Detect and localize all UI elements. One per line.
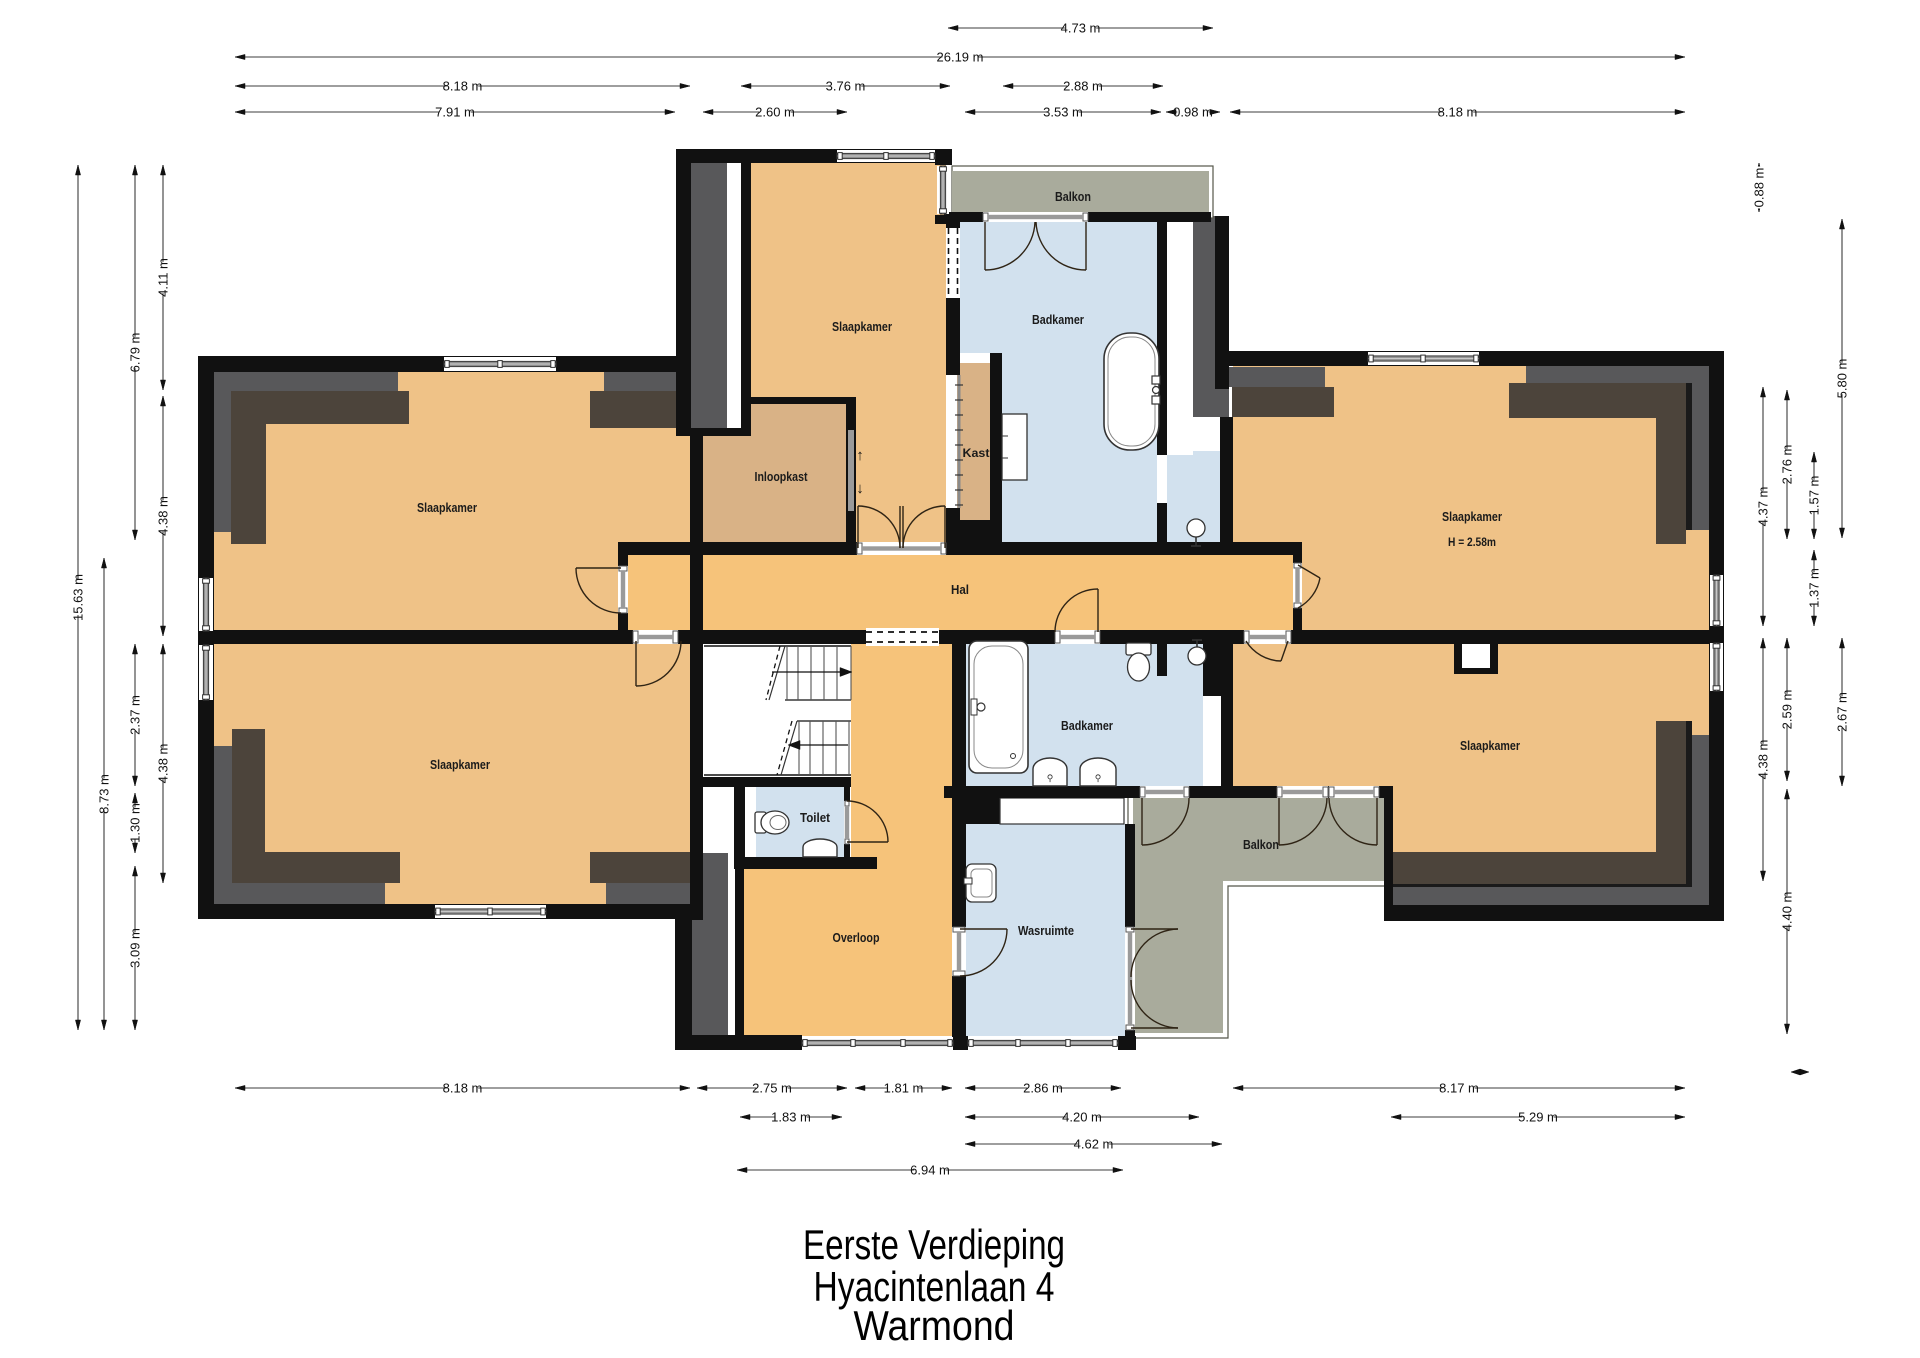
- svg-text:0.98 m: 0.98 m: [1173, 105, 1213, 120]
- svg-text:2.59 m: 2.59 m: [1780, 690, 1795, 730]
- svg-text:1.81 m: 1.81 m: [884, 1081, 924, 1096]
- svg-text:1.37 m: 1.37 m: [1807, 568, 1822, 608]
- svg-text:↓: ↓: [856, 480, 864, 497]
- svg-text:Warmond: Warmond: [854, 1302, 1015, 1349]
- svg-text:1.30 m: 1.30 m: [128, 803, 143, 843]
- svg-text:4.11 m: 4.11 m: [156, 258, 171, 297]
- svg-text:Slaapkamer: Slaapkamer: [1442, 509, 1502, 524]
- svg-text:15.63 m: 15.63 m: [71, 574, 86, 621]
- svg-text:1.83 m: 1.83 m: [771, 1110, 811, 1125]
- svg-text:2.86 m: 2.86 m: [1023, 1081, 1063, 1096]
- svg-text:Badkamer: Badkamer: [1061, 718, 1113, 733]
- svg-text:8.18 m: 8.18 m: [1438, 105, 1478, 120]
- svg-text:Balkon: Balkon: [1055, 189, 1091, 204]
- svg-text:4.37 m: 4.37 m: [1756, 487, 1771, 527]
- svg-text:Badkamer: Badkamer: [1032, 312, 1084, 327]
- svg-text:8.18 m: 8.18 m: [443, 79, 483, 94]
- svg-text:3.09 m: 3.09 m: [128, 928, 143, 968]
- svg-text:8.17 m: 8.17 m: [1439, 1081, 1479, 1096]
- svg-text:7.91 m: 7.91 m: [435, 105, 475, 120]
- svg-text:H = 2.58m: H = 2.58m: [1448, 537, 1496, 549]
- svg-text:Inloopkast: Inloopkast: [755, 469, 809, 484]
- svg-text:26.19 m: 26.19 m: [937, 50, 984, 65]
- svg-text:4.38 m: 4.38 m: [156, 496, 171, 536]
- svg-text:2.88 m: 2.88 m: [1063, 79, 1103, 94]
- svg-text:2.67 m: 2.67 m: [1835, 692, 1850, 732]
- svg-text:4.38 m: 4.38 m: [1756, 740, 1771, 780]
- svg-text:⚲: ⚲: [1095, 773, 1102, 783]
- svg-text:4.62 m: 4.62 m: [1074, 1137, 1114, 1152]
- svg-text:Kast: Kast: [963, 448, 990, 460]
- svg-text:8.73 m: 8.73 m: [97, 774, 112, 814]
- svg-text:4.40 m: 4.40 m: [1780, 892, 1795, 932]
- svg-text:Balkon: Balkon: [1243, 837, 1279, 852]
- svg-text:Hal: Hal: [951, 582, 969, 597]
- svg-text:4.38 m: 4.38 m: [156, 744, 171, 784]
- svg-text:Overloop: Overloop: [833, 930, 880, 945]
- svg-text:3.53 m: 3.53 m: [1043, 105, 1083, 120]
- svg-text:6.79 m: 6.79 m: [128, 333, 143, 373]
- svg-text:4.20 m: 4.20 m: [1062, 1110, 1102, 1125]
- svg-text:Wasruimte: Wasruimte: [1018, 923, 1074, 938]
- svg-text:Eerste Verdieping: Eerste Verdieping: [803, 1221, 1065, 1268]
- svg-text:⚲: ⚲: [1047, 773, 1054, 783]
- svg-text:Toilet: Toilet: [800, 810, 831, 825]
- svg-text:5.29 m: 5.29 m: [1518, 1110, 1558, 1125]
- svg-text:↑: ↑: [856, 447, 864, 464]
- svg-text:2.76 m: 2.76 m: [1780, 445, 1795, 485]
- svg-text:3.76 m: 3.76 m: [826, 79, 866, 94]
- svg-text:Slaapkamer: Slaapkamer: [1460, 738, 1520, 753]
- svg-text:0.88 m: 0.88 m: [1752, 168, 1767, 208]
- svg-text:6.94 m: 6.94 m: [910, 1163, 950, 1178]
- svg-text:2.60 m: 2.60 m: [755, 105, 795, 120]
- svg-text:4.73 m: 4.73 m: [1061, 21, 1101, 36]
- svg-text:Slaapkamer: Slaapkamer: [832, 319, 892, 334]
- svg-text:Slaapkamer: Slaapkamer: [430, 757, 490, 772]
- svg-text:5.80 m: 5.80 m: [1835, 359, 1850, 399]
- svg-text:2.75 m: 2.75 m: [752, 1081, 792, 1096]
- svg-text:2.37 m: 2.37 m: [128, 695, 143, 735]
- svg-text:1.57 m: 1.57 m: [1807, 476, 1822, 516]
- svg-text:Slaapkamer: Slaapkamer: [417, 500, 477, 515]
- svg-text:8.18 m: 8.18 m: [443, 1081, 483, 1096]
